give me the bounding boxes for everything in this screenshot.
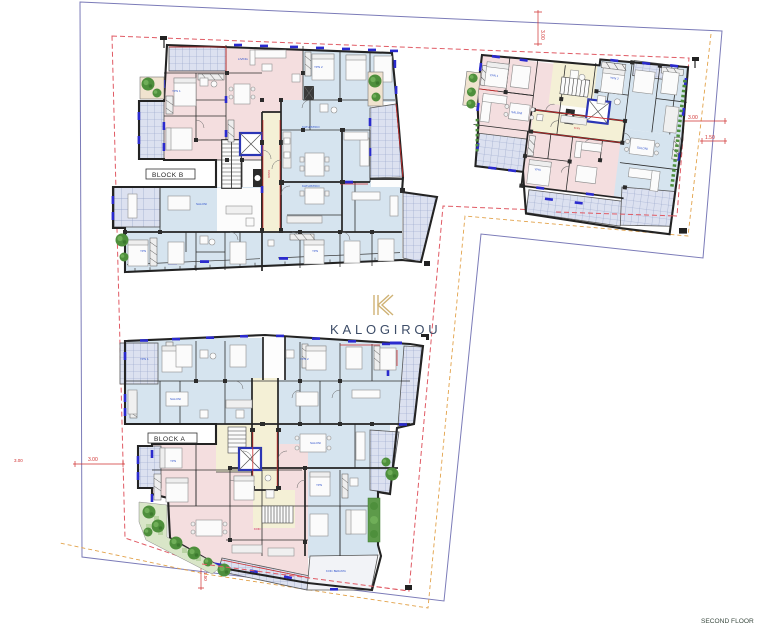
svg-text:3.00: 3.00 bbox=[539, 30, 545, 40]
svg-text:YPN: YPN bbox=[140, 249, 146, 253]
svg-text:BLOCK A: BLOCK A bbox=[154, 436, 185, 443]
svg-text:YPN 1: YPN 1 bbox=[140, 357, 149, 361]
svg-text:YPN: YPN bbox=[534, 167, 541, 172]
svg-text:3.00: 3.00 bbox=[688, 115, 698, 121]
svg-text:3.00: 3.00 bbox=[88, 457, 98, 463]
svg-text:1.50: 1.50 bbox=[705, 135, 715, 141]
svg-text:YPN 2: YPN 2 bbox=[314, 65, 323, 69]
svg-text:LIVING: LIVING bbox=[238, 57, 249, 61]
svg-text:BLOCK B: BLOCK B bbox=[152, 172, 184, 179]
svg-text:3.00: 3.00 bbox=[14, 458, 23, 463]
svg-text:SALONI: SALONI bbox=[196, 202, 207, 206]
svg-text:YPN: YPN bbox=[312, 249, 318, 253]
svg-text:KATHISTIKO: KATHISTIKO bbox=[302, 125, 320, 129]
svg-text:KATHISTIKO: KATHISTIKO bbox=[302, 184, 320, 188]
svg-text:YPN: YPN bbox=[170, 459, 176, 463]
svg-text:YPN 2: YPN 2 bbox=[300, 357, 309, 361]
svg-text:SALONI: SALONI bbox=[170, 397, 181, 401]
svg-text:YPN 1: YPN 1 bbox=[172, 89, 181, 93]
svg-text:SALONI: SALONI bbox=[310, 441, 321, 445]
svg-text:SECOND FLOOR: SECOND FLOOR bbox=[701, 618, 754, 625]
svg-text:1.50: 1.50 bbox=[203, 572, 208, 581]
svg-text:KOIN: KOIN bbox=[574, 126, 581, 131]
svg-text:DIADR: DIADR bbox=[267, 170, 271, 178]
svg-text:KALOGIROU: KALOGIROU bbox=[330, 322, 442, 337]
svg-text:KOIN. BERANTA: KOIN. BERANTA bbox=[326, 569, 346, 573]
svg-text:KOIN: KOIN bbox=[254, 527, 260, 531]
svg-text:YPN: YPN bbox=[316, 483, 322, 487]
